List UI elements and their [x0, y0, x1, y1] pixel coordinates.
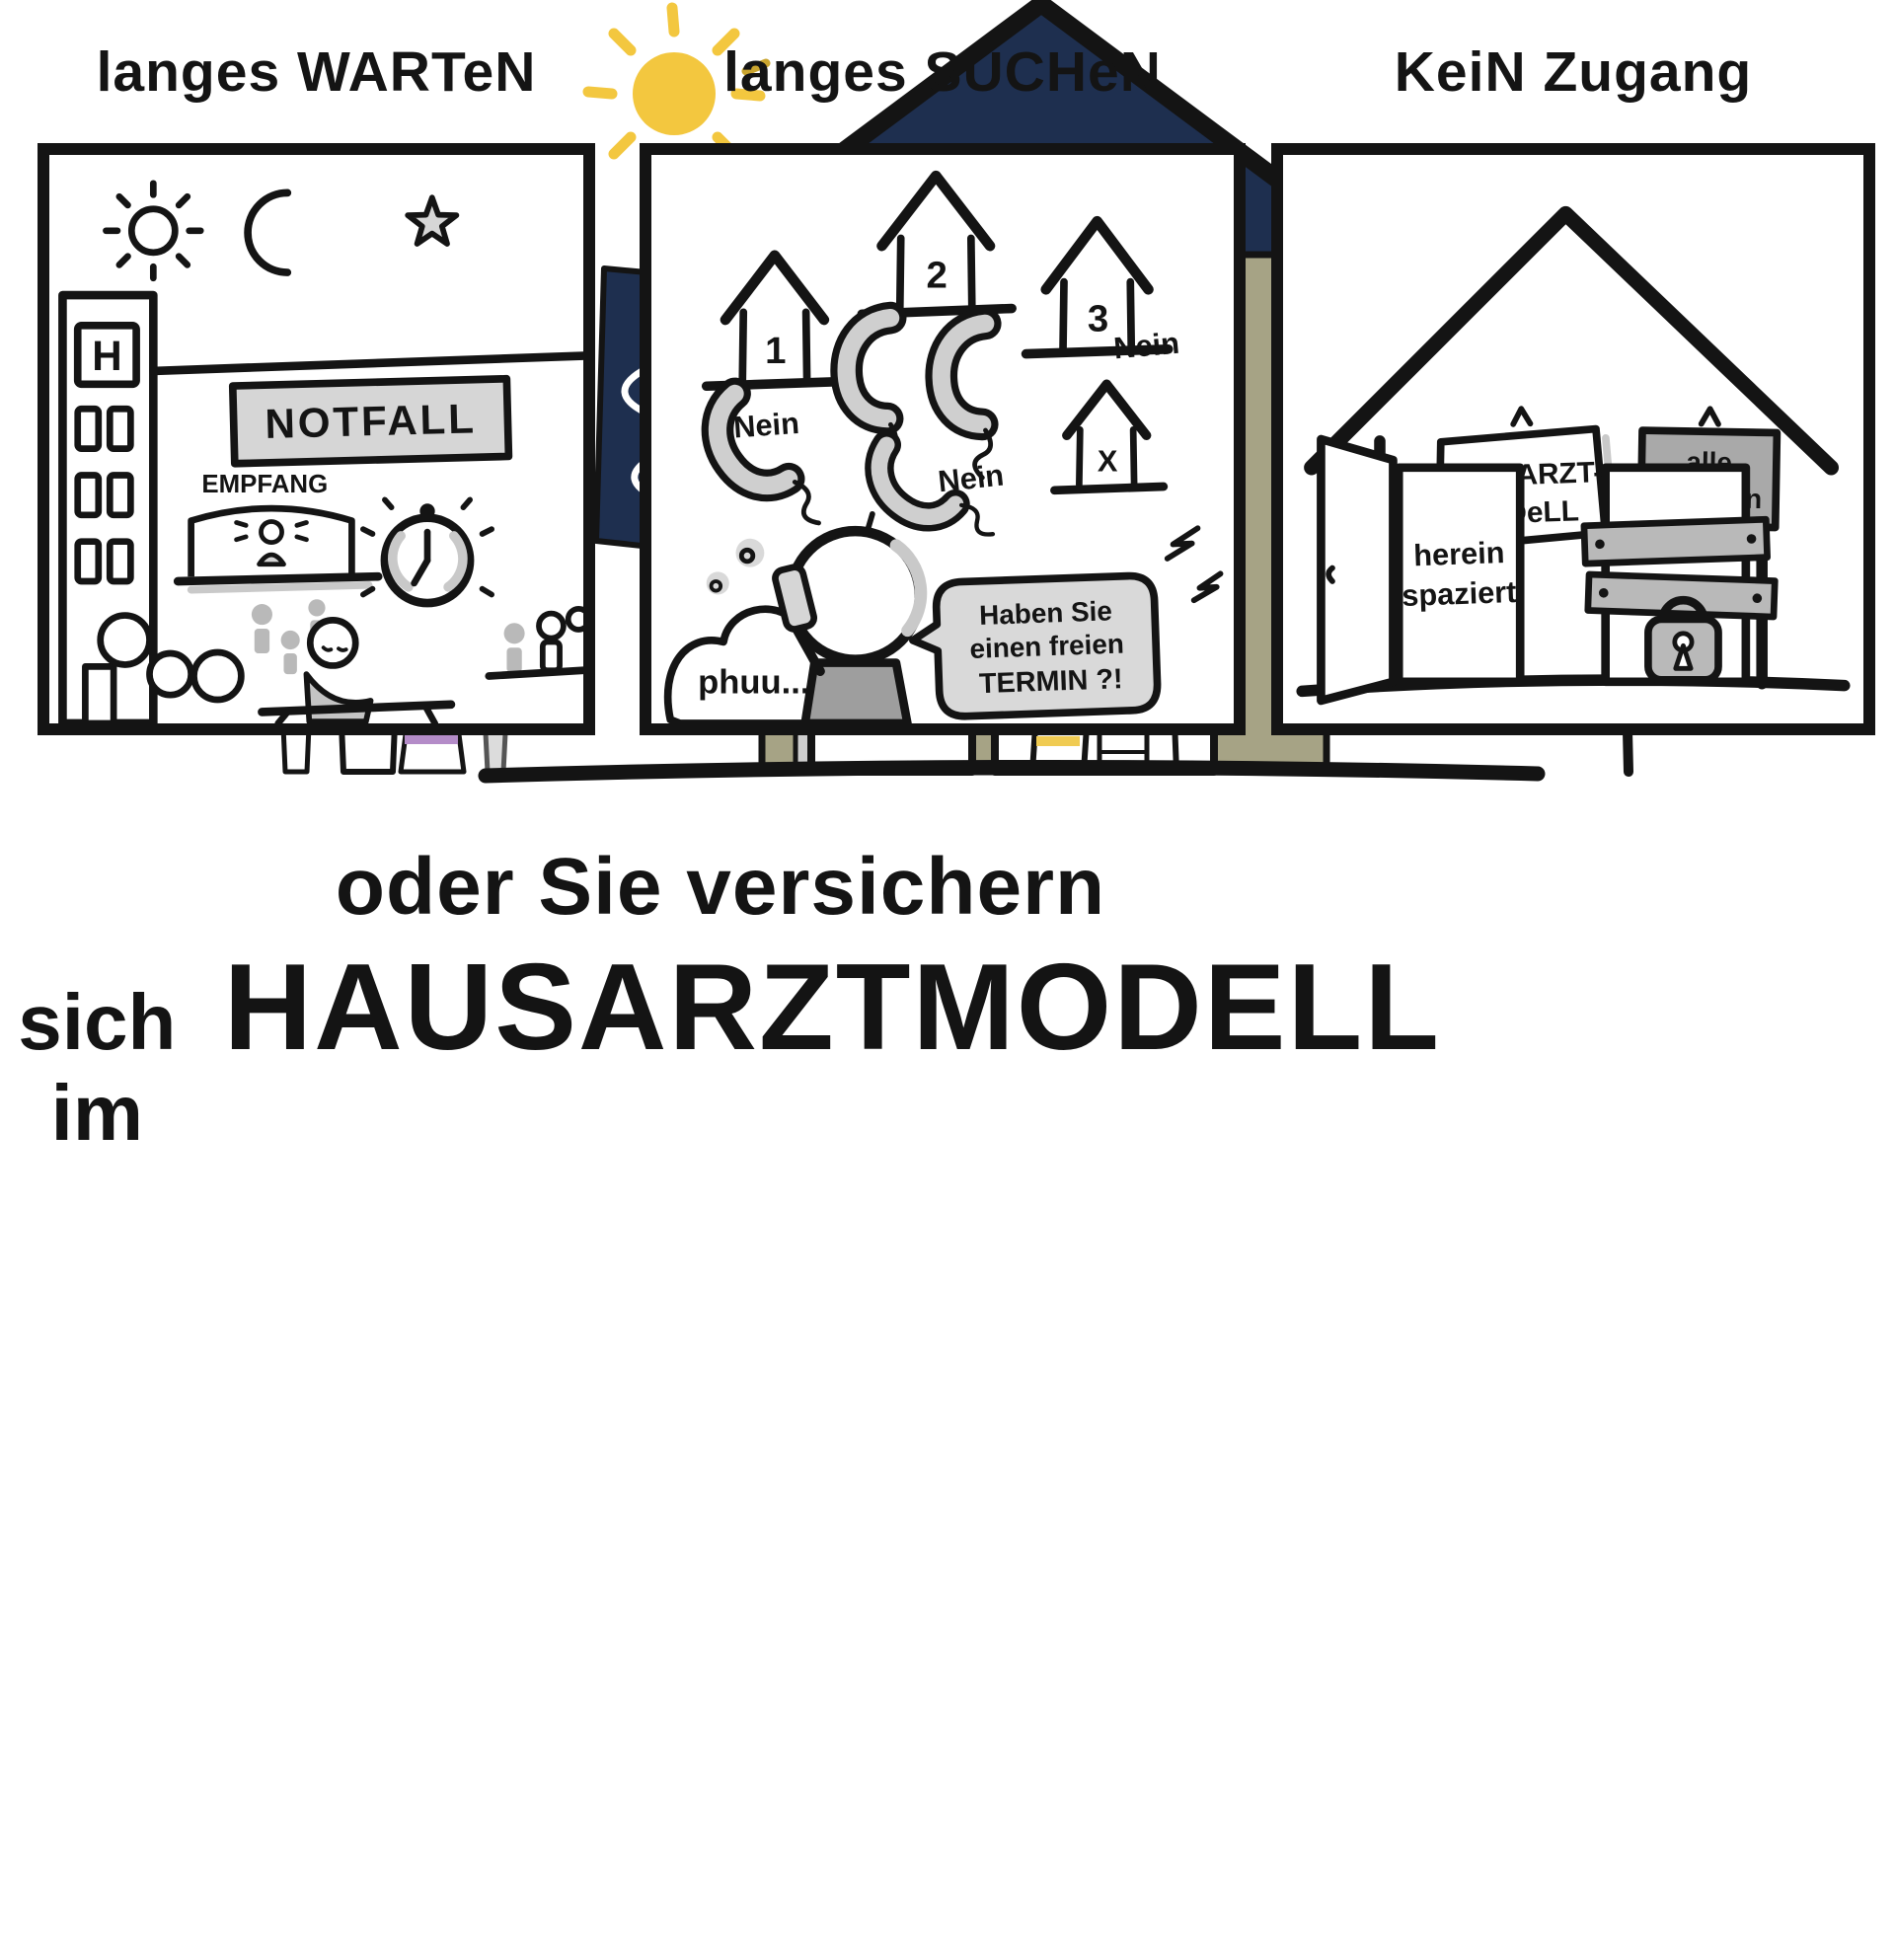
- speech-line-3: TERMIN ?!: [978, 663, 1123, 700]
- ring-zigzags: [1168, 528, 1221, 600]
- panel3-drawing: HAuSARZT- MoDeLL alle anderen herein spa…: [1283, 155, 1863, 723]
- house-1: 1: [707, 256, 847, 386]
- house-1-number: 1: [765, 330, 786, 372]
- panel3-no-access: HAuSARZT- MoDeLL alle anderen herein spa…: [1271, 143, 1875, 735]
- panel1-drawing: H NOTFALL EMPFANG: [49, 155, 583, 723]
- house-2: 2: [862, 176, 1012, 314]
- headline: oder Sie versichern sich im HAUSARZTMODE…: [0, 841, 1441, 1159]
- moon-icon: [248, 192, 287, 272]
- waiting-people-right: [489, 609, 583, 676]
- house-2-number: 2: [927, 254, 947, 296]
- hospital-door: [85, 666, 114, 723]
- panel3-title: KeiN Zugang: [1271, 30, 1875, 114]
- plank-bottom: [1588, 574, 1775, 617]
- panel2-drawing: 1 2 3 X: [651, 155, 1234, 723]
- sun-icon: [106, 184, 200, 278]
- nein-label-1: Nein: [732, 406, 800, 445]
- speech-line-2: einen freien: [969, 629, 1124, 664]
- panel1-waiting: H NOTFALL EMPFANG: [38, 143, 595, 735]
- nein-label-2: Nein: [937, 458, 1006, 499]
- notfall-sign: NOTFALL: [233, 379, 509, 464]
- star-icon: [408, 197, 456, 244]
- blocked-door: [1584, 468, 1775, 682]
- reception-counter: EMPFANG: [178, 471, 378, 590]
- panel2-title: langes SUCHeN: [640, 30, 1246, 114]
- headline-line2-big: HAUSARZTMODELL: [224, 938, 1441, 1078]
- house-3-number: 3: [1088, 298, 1108, 340]
- receptionist-body: [260, 555, 284, 565]
- door-line2: spaziert: [1402, 574, 1517, 613]
- ground-line: [486, 767, 1538, 776]
- door-line1: herein: [1413, 535, 1505, 572]
- house-x-number: X: [1098, 444, 1118, 479]
- stopwatch-clock: [363, 499, 492, 603]
- speech-bubble: Haben Sie einen freien TERMIN ?!: [911, 575, 1159, 718]
- open-door: herein spaziert: [1321, 439, 1520, 701]
- house-x: X: [1054, 384, 1164, 490]
- phone-handset-3: [931, 320, 1003, 479]
- panel2-searching: 1 2 3 X: [640, 143, 1246, 735]
- illustration-page: langes WARTeN langes SUCHeN KeiN Zugang: [0, 0, 1895, 1960]
- empfang-label: EMPFANG: [201, 471, 328, 498]
- panel1-title: langes WARTeN: [38, 30, 595, 114]
- receptionist-head: [261, 522, 281, 543]
- headline-line2-small: sich im: [0, 977, 194, 1159]
- nein-label-3: Nein: [1112, 326, 1180, 366]
- speech-line-1: Haben Sie: [979, 595, 1113, 631]
- hospital-h-sign: H: [92, 333, 121, 379]
- headline-line1: oder Sie versichern: [0, 841, 1441, 934]
- plank-top: [1584, 519, 1768, 564]
- interior-wall-line: [153, 356, 583, 371]
- thought-label: phuu...: [698, 663, 809, 701]
- notfall-label: NOTFALL: [265, 395, 477, 447]
